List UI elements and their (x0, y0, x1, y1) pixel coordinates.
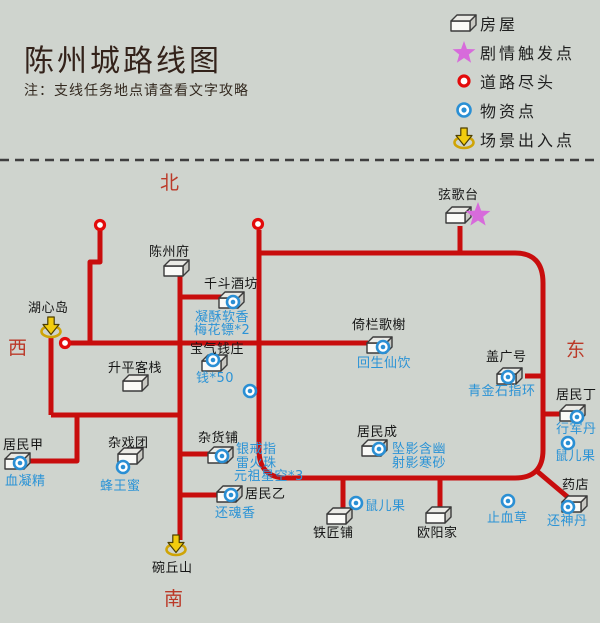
supply-point-icon (502, 371, 514, 383)
house-icon (426, 507, 451, 523)
supply-point-icon (562, 437, 574, 449)
supply-point-icon (14, 457, 26, 469)
supply-point-icon (207, 354, 219, 366)
house-icon (164, 260, 189, 276)
road (259, 230, 543, 478)
road-end-icon (61, 339, 70, 348)
road-end-icon (254, 220, 263, 229)
supply-point-icon (117, 461, 129, 473)
supply-point-icon (244, 385, 256, 397)
scene-exit-icon (167, 535, 186, 555)
house-icon (446, 207, 471, 223)
scene-exit-icon (42, 317, 61, 337)
supply-point-icon (377, 341, 389, 353)
map-canvas (0, 0, 600, 623)
supply-point-icon (562, 501, 574, 513)
supply-point-icon (225, 489, 237, 501)
plot-trigger-star-icon (466, 202, 491, 226)
road (90, 228, 100, 341)
supply-point-icon (502, 495, 514, 507)
supply-point-icon (373, 443, 385, 455)
road-end-icon (96, 221, 105, 230)
supply-point-icon (216, 450, 228, 462)
house-icon (123, 375, 148, 391)
supply-point-icon (350, 497, 362, 509)
road (538, 472, 570, 499)
supply-point-icon (227, 296, 239, 308)
house-icon (327, 508, 352, 524)
road (30, 415, 77, 461)
route-map-screen: 陈州城路线图 注：支线任务地点请查看文字攻略 房屋 剧情触发点 (0, 0, 600, 623)
supply-point-icon (571, 411, 583, 423)
